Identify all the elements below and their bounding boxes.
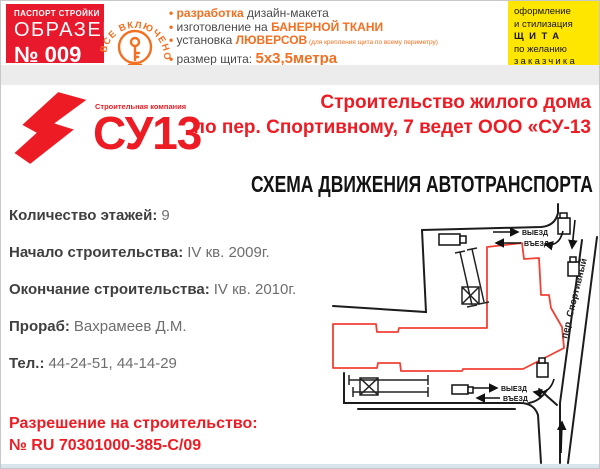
project-title: Строительство жилого дома по пер. Спорти… xyxy=(194,90,591,140)
project-title-line2: по пер. Спортивному, 7 ведет ООО «СУ-13 xyxy=(194,115,591,140)
feature-design: разработка дизайн-макета xyxy=(169,7,438,21)
construction-passport-poster: ПАСПОРТ СТРОЙКИ ОБРАЗЕЦ № 009 ВСЕ ВКЛЮЧЕ… xyxy=(0,0,600,469)
offer-line: и стилизация xyxy=(514,19,599,32)
passport-sample-box: ПАСПОРТ СТРОЙКИ ОБРАЗЕЦ № 009 xyxy=(6,4,104,63)
info-row-end: Окончание строительства:IV кв. 2010г. xyxy=(9,279,296,301)
crane-icon xyxy=(455,248,489,307)
feature-grommets: установка ЛЮВЕРСОВ (для крепления щита п… xyxy=(169,34,438,50)
entry-label: ВЪЕЗД xyxy=(503,396,528,403)
passport-label: ПАСПОРТ СТРОЙКИ xyxy=(14,9,104,18)
exit-label: ВЫЕЗД xyxy=(522,230,548,237)
permit-line2: № RU 70301000-385-С/09 xyxy=(9,435,258,457)
info-row-phone: Тел.:44-24-51, 44-14-29 xyxy=(9,353,296,375)
offer-line: оформление xyxy=(514,6,599,19)
crane-icon xyxy=(349,375,428,397)
traffic-scheme-title: СХЕМА ДВИЖЕНИЯ АВТОТРАНСПОРТА xyxy=(251,171,593,198)
info-row-floors: Количество этажей:9 xyxy=(9,205,296,227)
sample-label: ОБРАЗЕЦ xyxy=(14,19,104,42)
logo-name: СУ13 xyxy=(93,106,201,160)
offer-line-shield: ЩИТА xyxy=(514,31,599,44)
feature-banner-fabric: изготовление на БАНЕРНОЙ ТКАНИ xyxy=(169,21,438,35)
entry-label: ВЪЕЗД xyxy=(524,241,549,248)
building-outline xyxy=(333,243,564,371)
project-title-line1: Строительство жилого дома xyxy=(194,90,591,115)
su13-lightning-logo-icon xyxy=(13,89,91,167)
permit-line1: Разрешение на строительство: xyxy=(9,413,258,435)
info-row-foreman: Прораб:Вахрамеев Д.М. xyxy=(9,316,296,338)
site-plan-svg: ВЫЕЗД ВЪЕЗД ВЫЕЗД ВЪЕЗД пер. Спортивный xyxy=(331,197,600,465)
building-permit: Разрешение на строительство: № RU 703010… xyxy=(9,413,258,457)
bottom-edge-strip xyxy=(1,464,600,468)
info-row-start: Начало строительства:IV кв. 2009г. xyxy=(9,242,296,264)
header-divider-band xyxy=(1,65,600,85)
construction-info-list: Количество этажей:9 Начало строительства… xyxy=(9,205,296,390)
exit-label: ВЫЕЗД xyxy=(501,386,527,393)
custom-styling-offer-box: оформление и стилизация ЩИТА по желанию … xyxy=(508,1,599,72)
service-features-list: разработка дизайн-макета изготовление на… xyxy=(169,7,438,68)
offer-line: по желанию xyxy=(514,44,599,57)
